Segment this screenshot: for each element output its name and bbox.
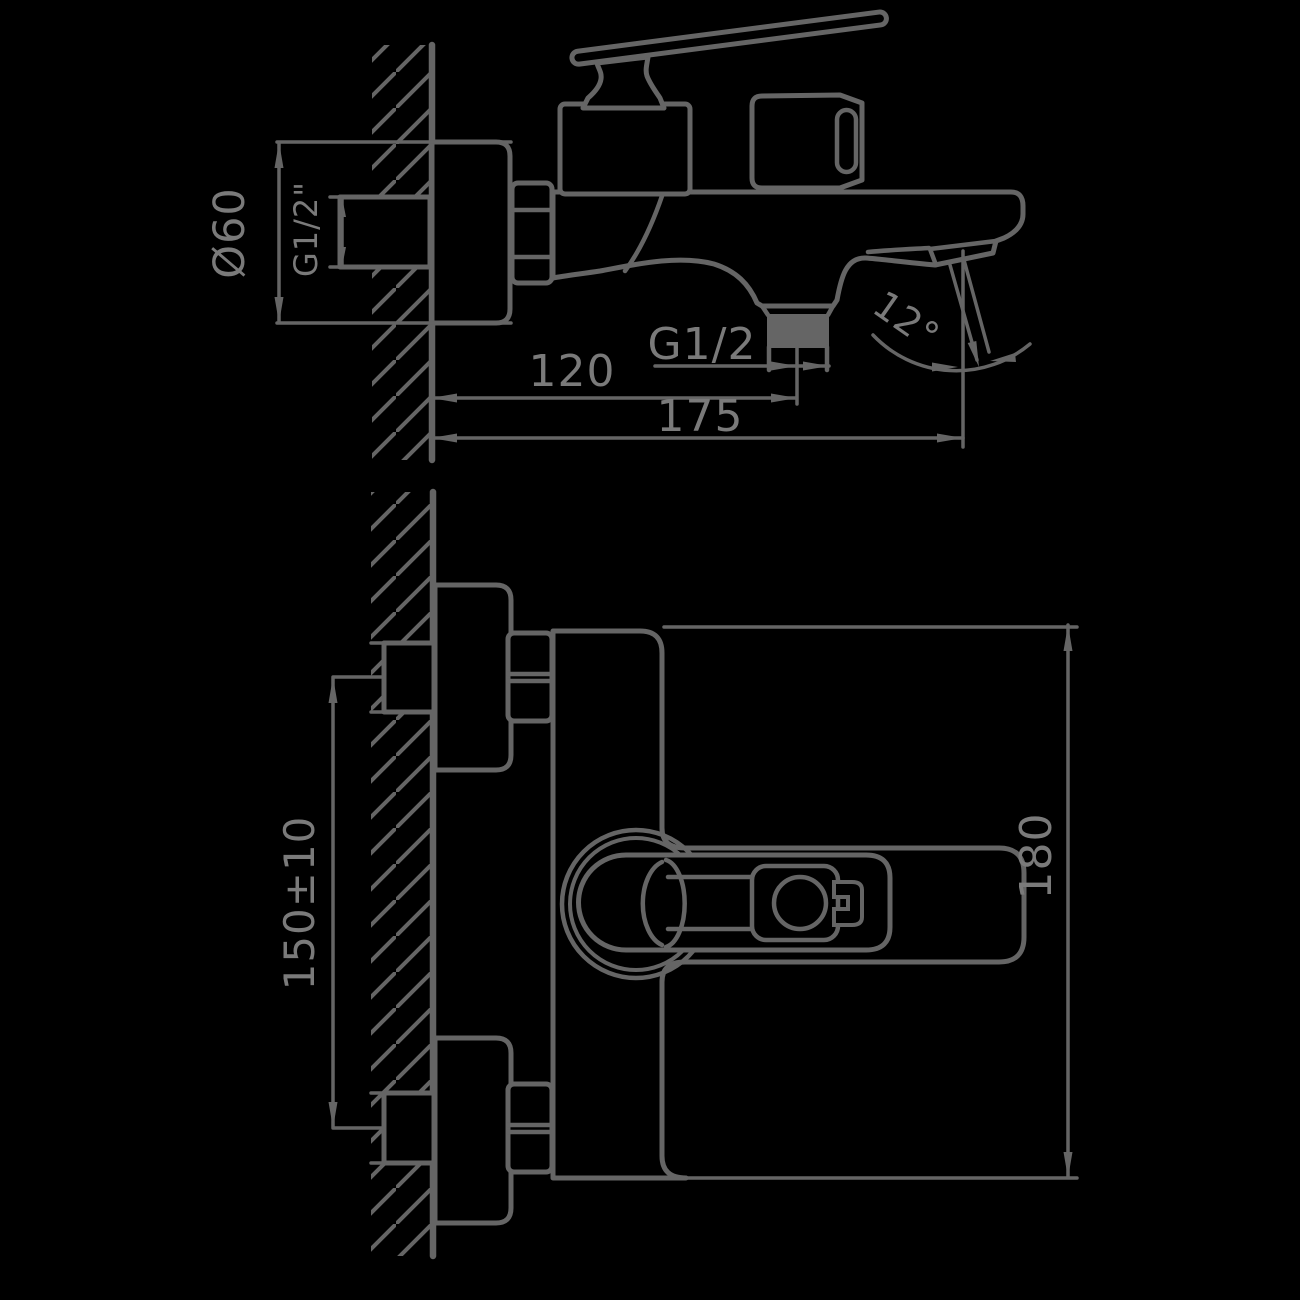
dim-label-outlet-thread: G1/2 — [648, 319, 757, 370]
diverter-grip-slot — [837, 110, 856, 172]
escutcheon-flange — [432, 142, 510, 323]
lower-inlet-fitting — [384, 1093, 434, 1163]
diverter-knob — [752, 95, 862, 188]
dimension-inlet-spacing: 150±10 — [275, 677, 384, 1128]
hex-nut — [512, 183, 552, 283]
dim-label-inlet-spacing: 150±10 — [275, 816, 324, 991]
dim-label-120: 120 — [529, 346, 616, 397]
faucet-body-side — [553, 192, 1023, 306]
lower-escutcheon — [435, 1038, 511, 1223]
dim-label-flange-diameter: Ø60 — [205, 187, 255, 279]
side-view: 12° Ø60 G1/2" 120 G1/2 — [205, 11, 1030, 460]
dim-label-spout-angle: 12° — [865, 282, 948, 358]
handle-neck — [583, 57, 664, 108]
faucet-technical-drawing: 12° Ø60 G1/2" 120 G1/2 — [0, 0, 1300, 1300]
wall-inlet-fitting — [340, 197, 430, 267]
cartridge-housing — [560, 104, 690, 194]
outlet-thread — [768, 315, 828, 347]
stream-angle-annotation: 12° — [865, 251, 1030, 447]
drawing-canvas: 12° Ø60 G1/2" 120 G1/2 — [0, 0, 1300, 1300]
lever-handle-side — [571, 11, 887, 65]
lever-handle-front — [579, 855, 890, 950]
upper-escutcheon — [435, 585, 511, 770]
dim-label-overall-height: 180 — [1011, 813, 1062, 900]
lower-hex-nut — [508, 1084, 552, 1172]
upper-inlet-fitting — [384, 643, 434, 712]
dim-label-175: 175 — [657, 391, 744, 442]
dim-label-inlet-thread: G1/2" — [287, 181, 325, 277]
front-view: 150±10 180 — [275, 492, 1077, 1256]
upper-hex-nut — [508, 633, 552, 721]
lever-end-circle — [774, 877, 826, 929]
